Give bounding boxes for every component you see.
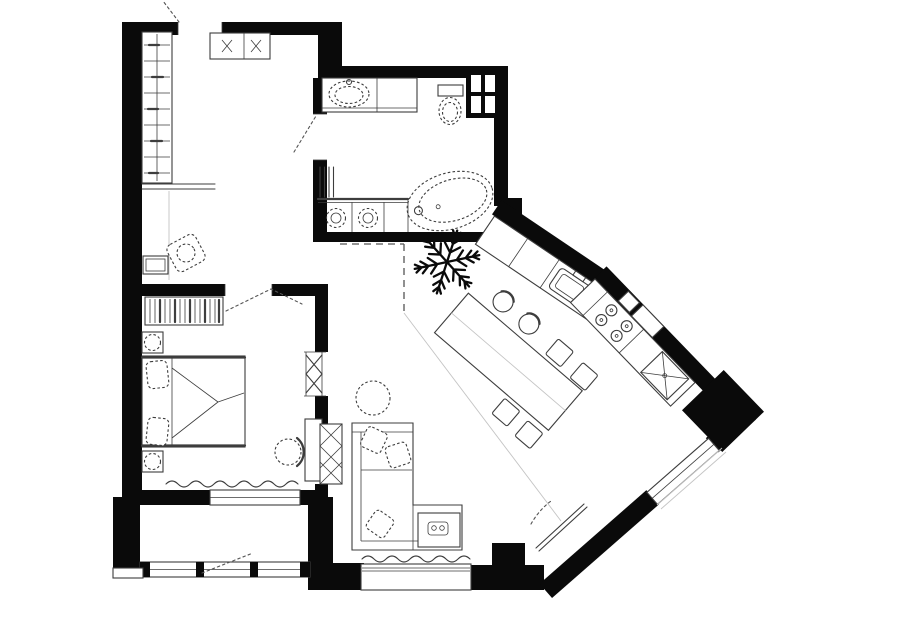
- wall-balcony-left: [113, 497, 140, 568]
- vent-shaft-cell: [471, 75, 481, 92]
- bathroom-door: [294, 114, 327, 160]
- vent-shaft-cell: [485, 75, 495, 92]
- vent-shaft-cell: [471, 96, 481, 113]
- wall-left: [122, 22, 142, 505]
- washer-drum: [327, 209, 346, 228]
- zone-boundary-dashed: [340, 244, 404, 313]
- double-bed: [142, 356, 245, 447]
- entry-hall: [142, 32, 270, 280]
- pillow: [146, 360, 170, 389]
- wall-bay-step: [492, 543, 525, 569]
- hall-side-table: [143, 256, 168, 274]
- bedroom-window: [210, 490, 300, 505]
- vanity-sink: [322, 78, 417, 112]
- dryer-drum: [359, 209, 378, 228]
- floor-plan-canvas: [0, 0, 900, 623]
- round-coffee-table: [356, 381, 390, 415]
- wall-living-bottom-left: [308, 563, 364, 590]
- floor-plan-drawing: [0, 0, 900, 623]
- washer-drum-inner: [331, 213, 341, 223]
- nightstand-bottom: [142, 451, 163, 472]
- vent-shaft-cell: [485, 96, 495, 113]
- duct-hatched: [320, 424, 342, 484]
- bathtub-drain: [436, 204, 441, 209]
- bedroom-chair: [275, 438, 304, 466]
- bathroom-door-swing: [294, 116, 316, 152]
- wall-bedroom-east-upper: [315, 284, 328, 352]
- round-chair: [515, 309, 544, 338]
- wardrobe: [142, 32, 172, 183]
- bedroom: [142, 297, 342, 487]
- bay-window: [361, 556, 471, 590]
- curtain-wave-living: [362, 556, 470, 562]
- round-chair: [489, 287, 518, 316]
- balcony-corner-sill: [113, 568, 143, 578]
- toilet: [438, 85, 463, 125]
- nightstand-top: [142, 332, 163, 353]
- wall-bedroom-top-west: [142, 284, 225, 296]
- bedroom-sliding-door: [304, 352, 326, 396]
- entry-cabinet: [210, 33, 270, 59]
- wall-balcony-right: [308, 497, 333, 567]
- corner-sofa: [352, 423, 462, 550]
- wall-bedroom-bottom-west: [142, 490, 210, 505]
- square-chair: [515, 421, 543, 449]
- balcony-glazing: [113, 562, 310, 578]
- dresser: [145, 297, 223, 325]
- bathtub: [400, 161, 501, 240]
- dryer-drum-inner: [363, 213, 373, 223]
- wall-bedroom-top-east: [272, 284, 318, 296]
- terrace-door: [531, 501, 587, 551]
- entry-door-swing: [163, 1, 179, 22]
- curtain-wave-bedroom: [166, 481, 298, 487]
- washer-dryer-counter: [318, 199, 408, 232]
- wall-diagonal-lower-b: [540, 490, 659, 598]
- hall-armchair: [165, 232, 207, 274]
- pillow: [146, 417, 170, 446]
- terrace-window: [647, 438, 719, 504]
- sofa-end-table: [418, 513, 460, 547]
